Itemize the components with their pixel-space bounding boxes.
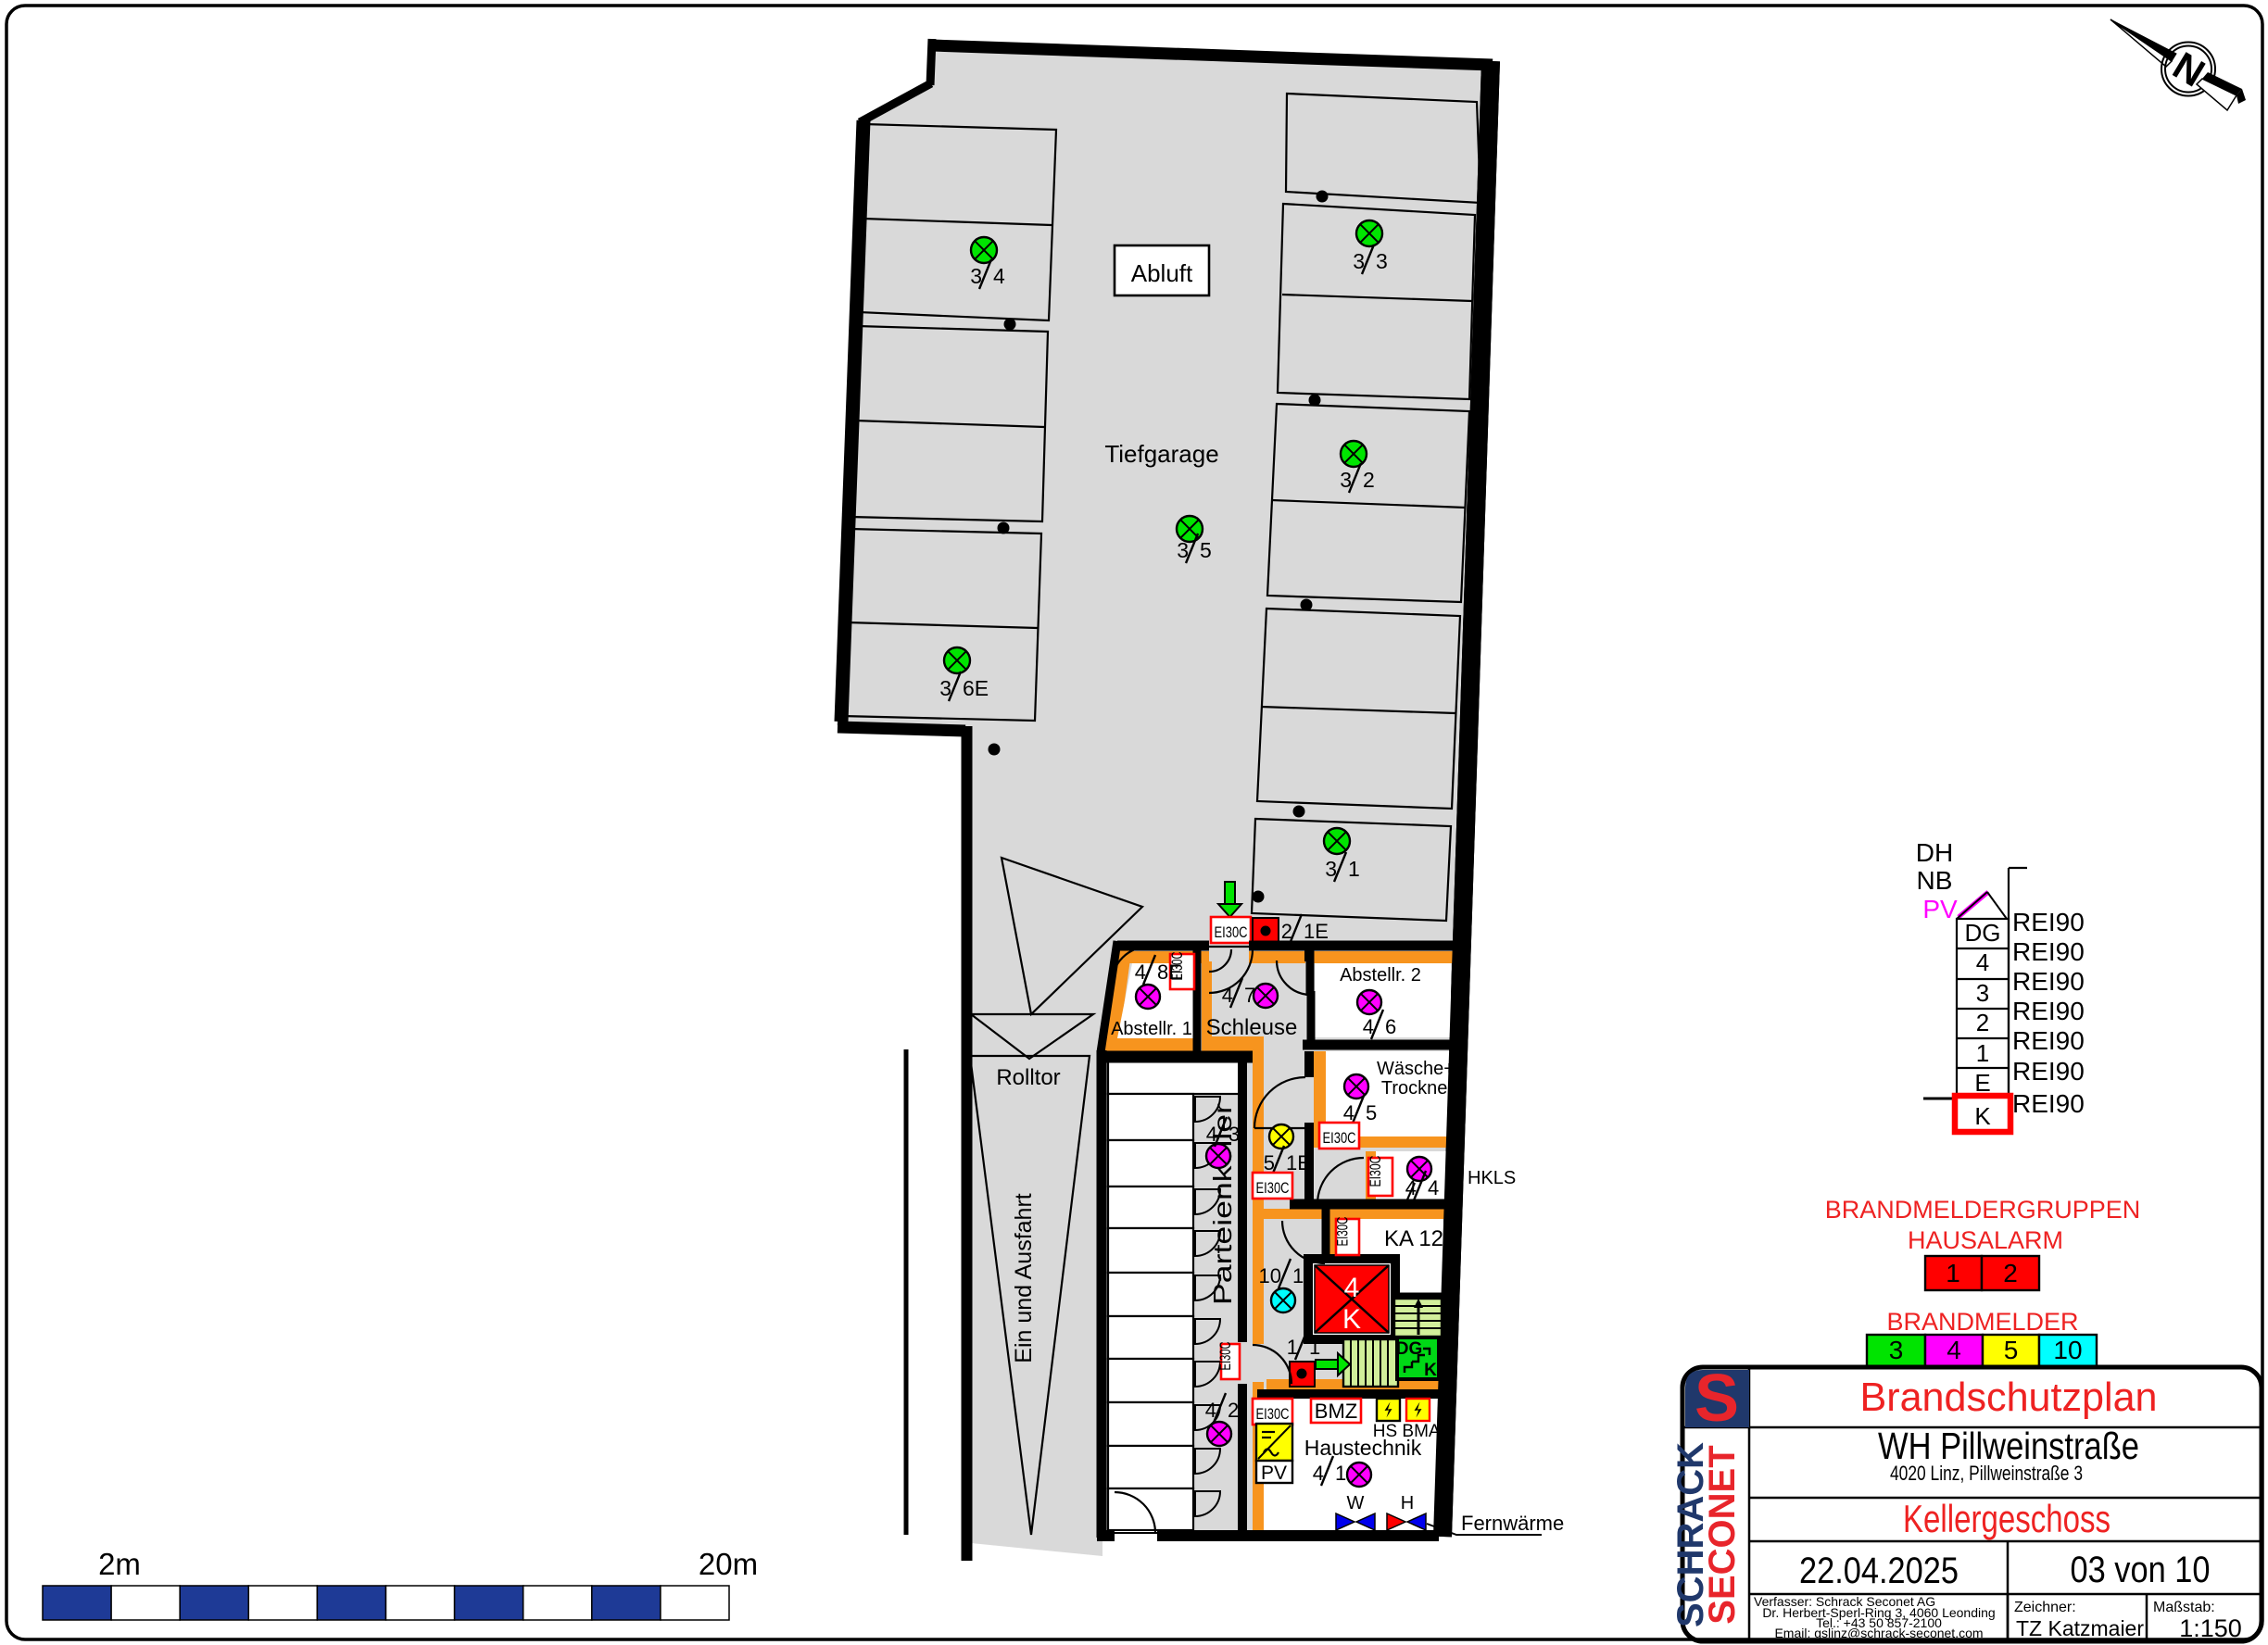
svg-text:2: 2 xyxy=(1976,1009,1989,1036)
svg-text:Tiefgarage: Tiefgarage xyxy=(1104,440,1218,468)
svg-text:1: 1 xyxy=(1292,1264,1304,1287)
svg-text:1E: 1E xyxy=(1286,1151,1311,1174)
svg-text:EI30C: EI30C xyxy=(1323,1129,1356,1147)
svg-text:Abstellr. 1: Abstellr. 1 xyxy=(1111,1019,1192,1039)
svg-text:EI30C: EI30C xyxy=(1334,1217,1352,1247)
svg-text:22.04.2025: 22.04.2025 xyxy=(1799,1551,1959,1591)
svg-text:1: 1 xyxy=(1976,1039,1989,1067)
svg-text:Rolltor: Rolltor xyxy=(996,1065,1060,1090)
svg-text:HKLS: HKLS xyxy=(1468,1168,1516,1188)
svg-text:3: 3 xyxy=(1976,979,1989,1007)
svg-text:2: 2 xyxy=(2003,1259,2018,1287)
svg-text:HAUSALARM: HAUSALARM xyxy=(1908,1226,2063,1254)
svg-text:03 von 10: 03 von 10 xyxy=(2071,1550,2211,1590)
svg-text:Zeichner:: Zeichner: xyxy=(2014,1600,2076,1615)
svg-text:2: 2 xyxy=(1363,468,1375,492)
svg-text:DH: DH xyxy=(1916,838,1953,867)
svg-text:EI30C: EI30C xyxy=(1256,1179,1290,1197)
svg-text:REI90: REI90 xyxy=(2012,967,2085,996)
svg-text:SECONET: SECONET xyxy=(1702,1445,1743,1624)
svg-text:2m: 2m xyxy=(98,1547,141,1581)
svg-text:DG: DG xyxy=(1965,919,2001,947)
svg-text:3: 3 xyxy=(1228,1123,1240,1146)
svg-text:4: 4 xyxy=(993,264,1005,288)
svg-text:PV: PV xyxy=(1922,895,1958,923)
svg-text:1: 1 xyxy=(1335,1462,1346,1485)
svg-text:6E: 6E xyxy=(963,676,989,700)
svg-text:4: 4 xyxy=(1976,948,1989,976)
svg-text:REI90: REI90 xyxy=(2012,1026,2085,1055)
svg-text:E: E xyxy=(1974,1069,1990,1097)
svg-text:H: H xyxy=(1401,1493,1414,1513)
svg-text:5: 5 xyxy=(2004,1336,2019,1364)
svg-text:K: K xyxy=(1974,1102,1991,1130)
svg-text:Schleuse: Schleuse xyxy=(1206,1015,1298,1040)
svg-text:1: 1 xyxy=(1309,1336,1320,1359)
svg-text:BMZ: BMZ xyxy=(1315,1400,1357,1423)
svg-text:K: K xyxy=(1342,1304,1361,1335)
svg-text:Abluft: Abluft xyxy=(1131,259,1193,287)
svg-text:KA 12: KA 12 xyxy=(1384,1226,1443,1251)
svg-text:NB: NB xyxy=(1917,866,1953,895)
svg-text:REI90: REI90 xyxy=(2012,1089,2085,1118)
svg-text:Haustechnik: Haustechnik xyxy=(1304,1436,1422,1460)
svg-text:S: S xyxy=(1695,1362,1739,1436)
svg-text:10: 10 xyxy=(1259,1264,1281,1287)
svg-text:10: 10 xyxy=(2053,1336,2082,1364)
svg-text:4: 4 xyxy=(1344,1273,1360,1303)
svg-text:EI30C: EI30C xyxy=(1215,923,1248,941)
svg-text:Abstellr. 2: Abstellr. 2 xyxy=(1340,965,1421,986)
svg-text:Trockner: Trockner xyxy=(1381,1078,1455,1099)
svg-text:REI90: REI90 xyxy=(2012,908,2085,936)
svg-text:1E: 1E xyxy=(1304,920,1329,943)
svg-text:BRANDMELDER: BRANDMELDER xyxy=(1886,1308,2078,1336)
svg-text:1: 1 xyxy=(1348,857,1360,881)
svg-text:REI90: REI90 xyxy=(2012,937,2085,966)
svg-text:4: 4 xyxy=(1947,1336,1961,1364)
svg-text:TZ Katzmaier: TZ Katzmaier xyxy=(2016,1616,2144,1640)
svg-text:EI30C: EI30C xyxy=(1216,1342,1234,1371)
svg-text:4: 4 xyxy=(1428,1176,1439,1199)
svg-text:1: 1 xyxy=(1946,1259,1960,1287)
svg-text:Kellergeschoss: Kellergeschoss xyxy=(1903,1497,2110,1540)
svg-text:PV: PV xyxy=(1261,1463,1287,1484)
svg-text:K: K xyxy=(1424,1361,1437,1380)
svg-text:Ein und Ausfahrt: Ein und Ausfahrt xyxy=(1011,1193,1037,1363)
svg-text:EI30C: EI30C xyxy=(1367,1156,1384,1187)
svg-text:Fernwärme: Fernwärme xyxy=(1461,1512,1564,1535)
svg-text:5: 5 xyxy=(1366,1101,1377,1124)
svg-text:Maßstab:: Maßstab: xyxy=(2153,1600,2215,1615)
svg-text:2: 2 xyxy=(1228,1399,1239,1422)
svg-text:W: W xyxy=(1347,1493,1365,1513)
svg-text:REI90: REI90 xyxy=(2012,1057,2085,1086)
svg-text:6: 6 xyxy=(1385,1015,1396,1038)
svg-text:3: 3 xyxy=(1889,1336,1904,1364)
svg-text:20m: 20m xyxy=(699,1547,758,1581)
svg-text:EI30C: EI30C xyxy=(1256,1405,1290,1423)
svg-text:Brandschutzplan: Brandschutzplan xyxy=(1860,1375,2158,1420)
svg-text:REI90: REI90 xyxy=(2012,997,2085,1025)
svg-text:Wäsche+: Wäsche+ xyxy=(1377,1059,1455,1079)
svg-text:BRANDMELDERGRUPPEN: BRANDMELDERGRUPPEN xyxy=(1825,1196,2141,1224)
svg-text:5: 5 xyxy=(1200,538,1212,562)
svg-text:8E: 8E xyxy=(1157,961,1182,984)
svg-text:3: 3 xyxy=(1376,249,1388,273)
svg-text:4020 Linz, Pillweinstraße 3: 4020 Linz, Pillweinstraße 3 xyxy=(1890,1462,2083,1485)
